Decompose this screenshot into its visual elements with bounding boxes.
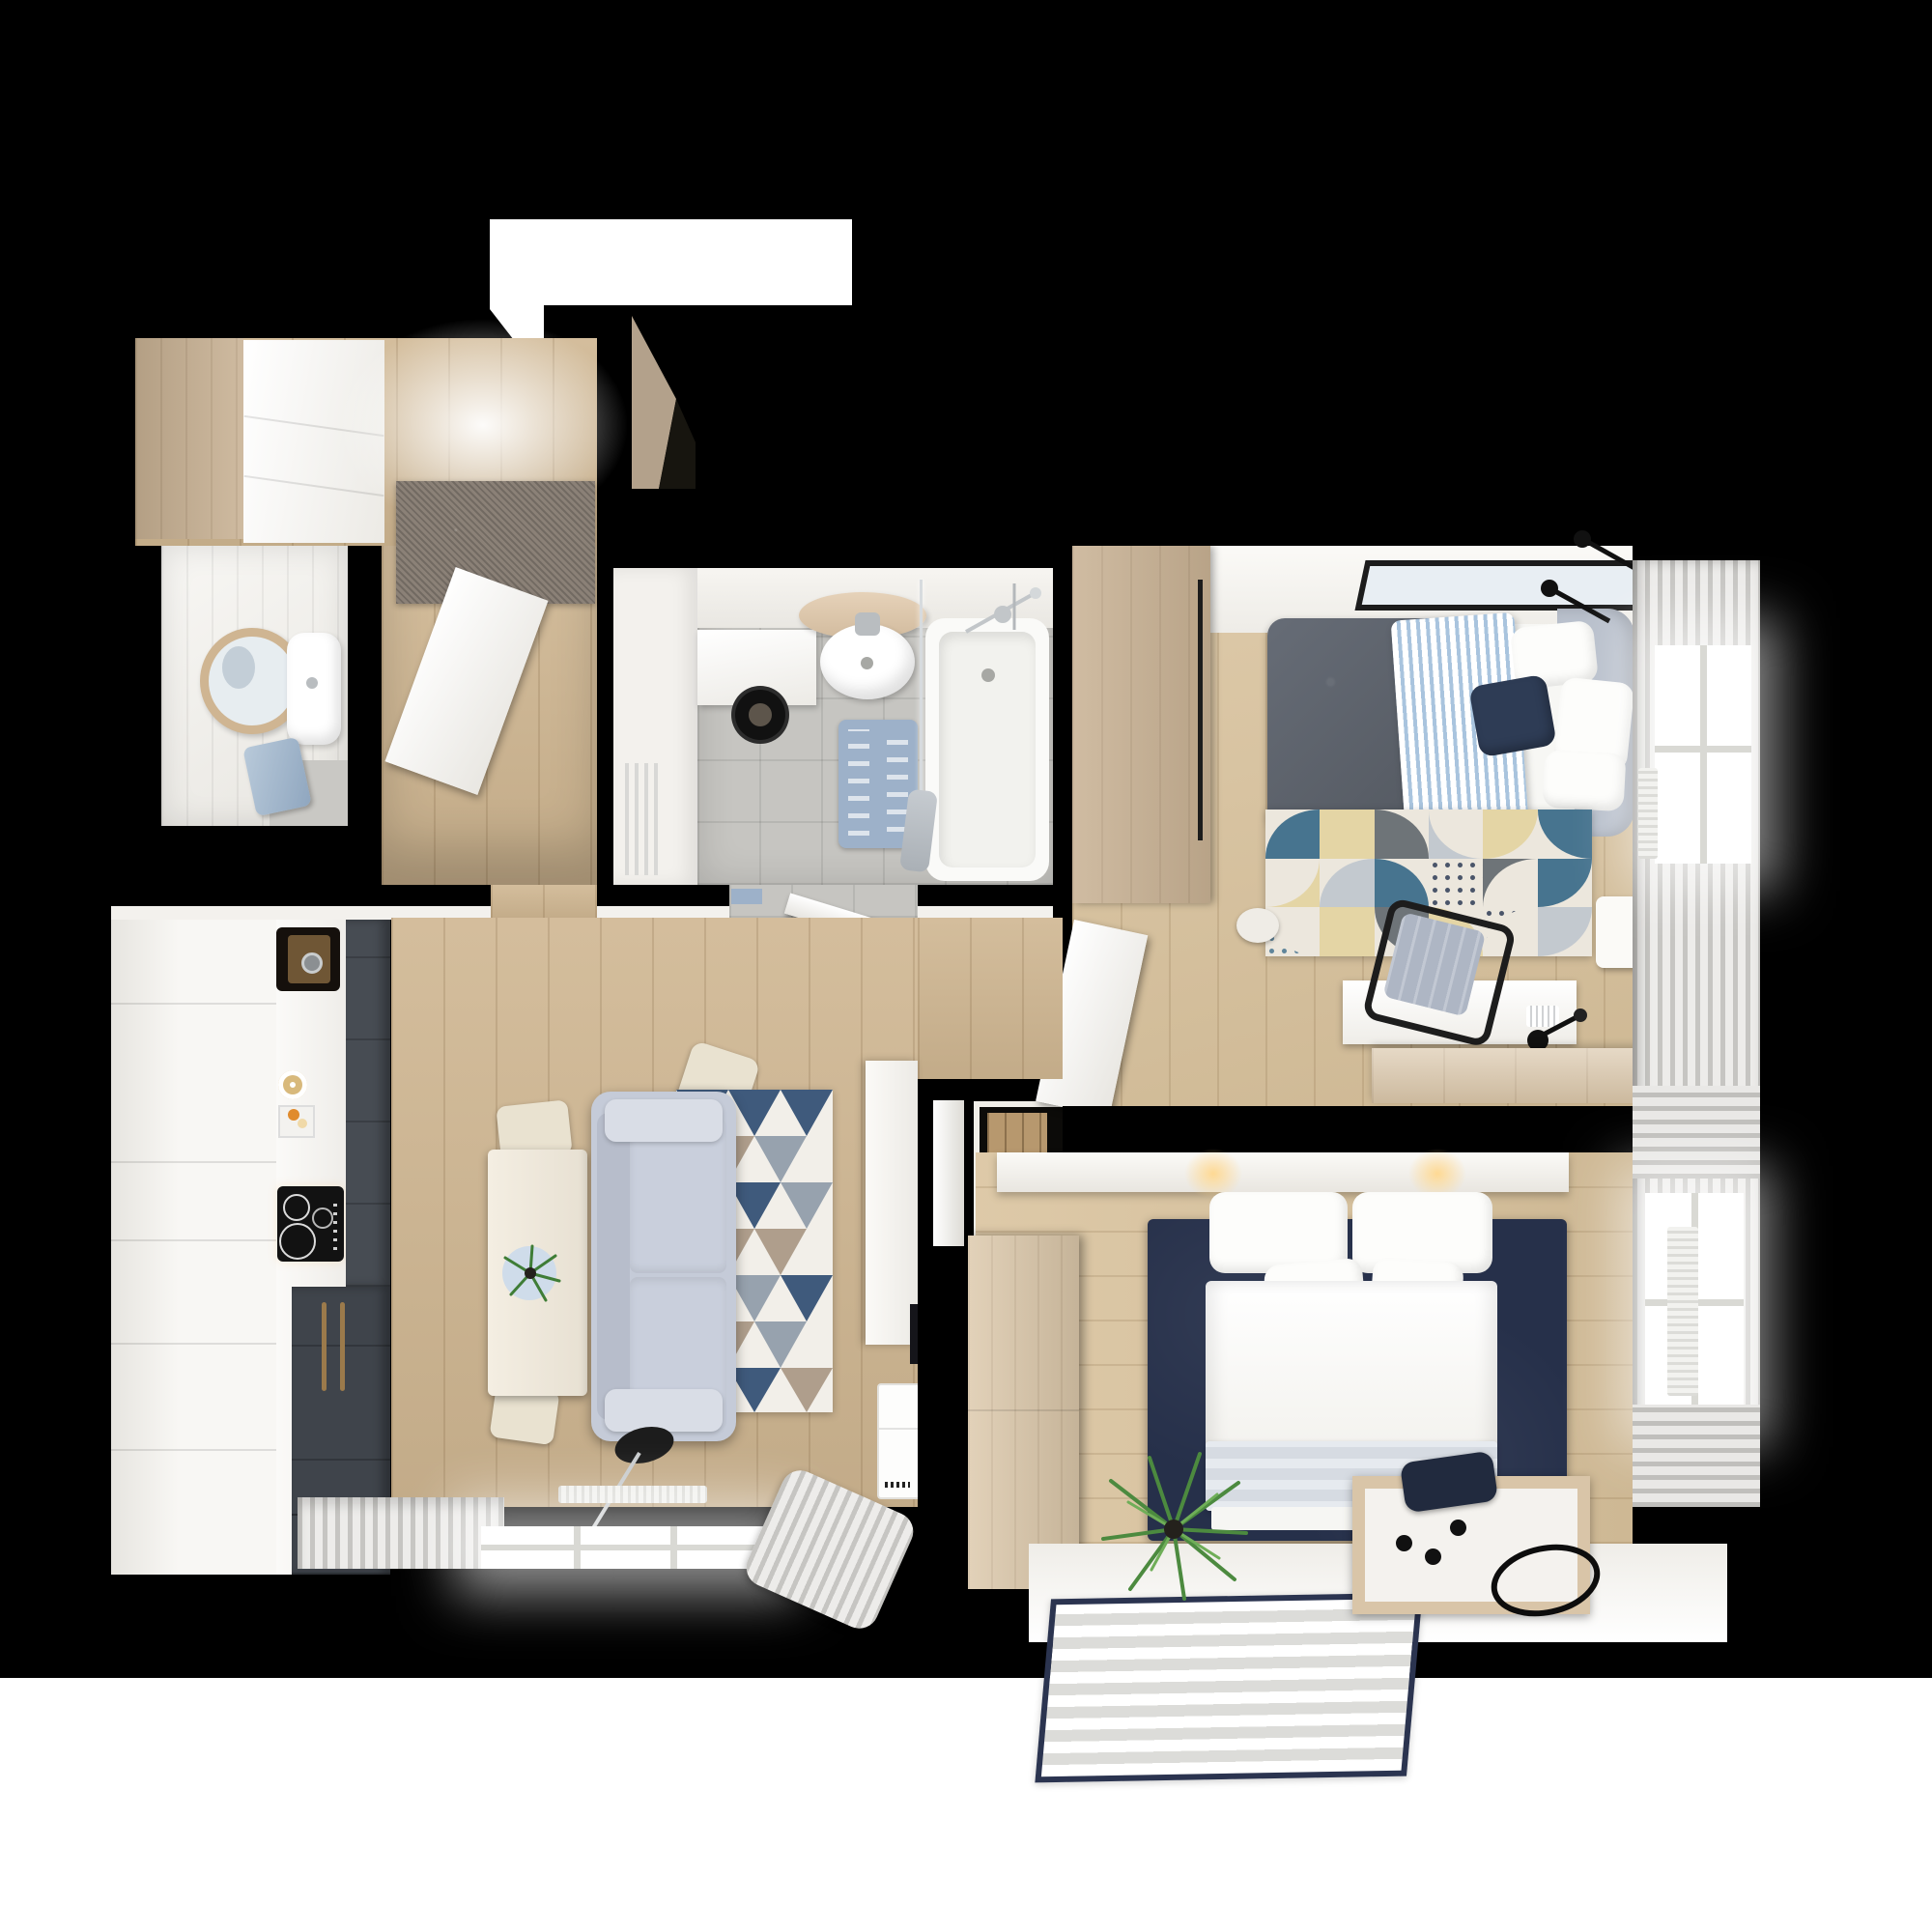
rug-shape (1538, 907, 1592, 956)
sofa-headrest-pillow (605, 1099, 723, 1142)
window-mullion (481, 1545, 773, 1550)
breakfast-set (276, 1068, 315, 1136)
dresser-seam (968, 1409, 1079, 1411)
rug-shape (1320, 859, 1374, 908)
bedroom2-dresser (968, 1236, 1079, 1589)
washer-door (735, 690, 785, 740)
washroom-sink (287, 633, 341, 745)
rug-shape (1483, 810, 1537, 859)
window-mullion (1700, 645, 1707, 864)
rug-shape (1538, 810, 1592, 859)
washer-door-glass (749, 703, 772, 726)
device-controls (885, 1482, 910, 1488)
orange (288, 1109, 299, 1121)
rug-tile (1483, 859, 1537, 908)
cabinet-seam (111, 1449, 280, 1451)
kitchen-cabinets (111, 920, 280, 1575)
induction-cooktop (277, 1186, 344, 1262)
basin-faucet (855, 612, 880, 636)
rug-tile (1320, 859, 1374, 908)
rug-tile (1538, 907, 1592, 956)
tub-drain (981, 668, 995, 682)
wardrobe-handle (1198, 580, 1203, 840)
bench-knob (1425, 1548, 1441, 1565)
bowl (278, 1070, 307, 1099)
bed1-navy-pillow (1468, 674, 1557, 758)
rug-tile (1265, 859, 1320, 908)
bedroom1-wardrobe (1072, 546, 1210, 903)
bedroom2-plant (1092, 1444, 1256, 1613)
living-floor-passage (918, 918, 1063, 1079)
rug-shape (1265, 859, 1320, 908)
sofa-cushion (630, 1119, 726, 1273)
rug-tile (1483, 810, 1537, 859)
page-bottom-band (0, 1678, 1932, 1932)
sink-drain (306, 677, 318, 689)
rug-tile (1265, 810, 1320, 859)
living-radiator (558, 1486, 707, 1503)
tub-faucet-set (947, 564, 1053, 651)
striped-sill-mat (1035, 1593, 1422, 1783)
cabinet-seam (111, 1161, 280, 1163)
towel-radiator (625, 763, 658, 875)
rug-shape (1429, 810, 1483, 859)
brass-handle (322, 1302, 327, 1391)
bench-knob (1450, 1520, 1466, 1536)
tv-console (866, 1061, 918, 1345)
graphite-tall-unit (346, 920, 390, 1287)
mirror-reflection (222, 646, 255, 689)
window-mullion (1655, 746, 1751, 753)
curtain-swag (1633, 1405, 1760, 1507)
rug-tile (1429, 810, 1483, 859)
bench-knob (1396, 1535, 1412, 1551)
rug-tile (1320, 810, 1374, 859)
kitchen-sink (276, 927, 340, 991)
living-bedroom2-wall (918, 1246, 968, 1546)
rug-tile (1538, 859, 1592, 908)
egg (298, 1119, 307, 1128)
hall-wardrobe (135, 338, 243, 539)
mat-stitches (848, 729, 869, 836)
bath-sink-basin (820, 624, 915, 699)
burner-ring (312, 1207, 333, 1229)
tv-edge (910, 1304, 918, 1364)
bed1-stool (1236, 908, 1279, 943)
bathroom (613, 568, 1053, 885)
sofa-headrest-pillow (605, 1389, 723, 1432)
device-seam (879, 1428, 920, 1430)
dining-table (488, 1150, 587, 1396)
bedroom2-window-zone (1633, 1086, 1760, 1507)
rug-shape (1375, 810, 1429, 859)
rug-shape (1538, 859, 1592, 908)
cabinet-seam (111, 1343, 280, 1345)
floor-plan-stage (0, 0, 1932, 1932)
bathtub-inner (939, 632, 1036, 867)
sofa (591, 1092, 736, 1441)
cabinet-seam (111, 1003, 280, 1005)
blue-towel (242, 737, 312, 816)
sink-drain (301, 952, 323, 974)
bedroom-1 (1072, 546, 1760, 1106)
rug-tile (1375, 810, 1429, 859)
bedroom1-sideboard (1372, 1048, 1660, 1103)
rug-tile (1320, 907, 1374, 956)
mat-through-door (731, 889, 762, 904)
window-pane (1655, 645, 1751, 864)
rug-tile (1538, 810, 1592, 859)
cable-oval (1484, 1538, 1609, 1625)
bed1-pillow (1542, 750, 1626, 811)
living-curtains-left (298, 1497, 504, 1569)
washroom (161, 546, 348, 826)
corridor-opening (491, 885, 597, 920)
rug-shape (1483, 859, 1537, 908)
cabinet-seam (111, 1239, 280, 1241)
bathtub (925, 618, 1049, 881)
table-plant (496, 1238, 567, 1310)
rug-tile (1429, 859, 1483, 908)
rug-shape (1265, 810, 1320, 859)
bed2-duvet (1206, 1281, 1497, 1453)
bedroom1-radiator (1638, 768, 1658, 859)
basin-drain (861, 657, 873, 669)
sofa-backrest (597, 1113, 630, 1420)
devices-stack (877, 1383, 922, 1499)
living-window-pane (481, 1526, 773, 1569)
cooktop-controls (333, 1198, 337, 1250)
curtain-swag (1633, 1086, 1760, 1179)
bedroom1-window-zone (1633, 560, 1760, 1106)
burner-ring (279, 1223, 316, 1260)
burner-ring (283, 1194, 310, 1221)
bedroom2-radiator (1667, 1227, 1698, 1396)
brass-handle (340, 1302, 345, 1391)
headboard-shelf (997, 1152, 1569, 1192)
